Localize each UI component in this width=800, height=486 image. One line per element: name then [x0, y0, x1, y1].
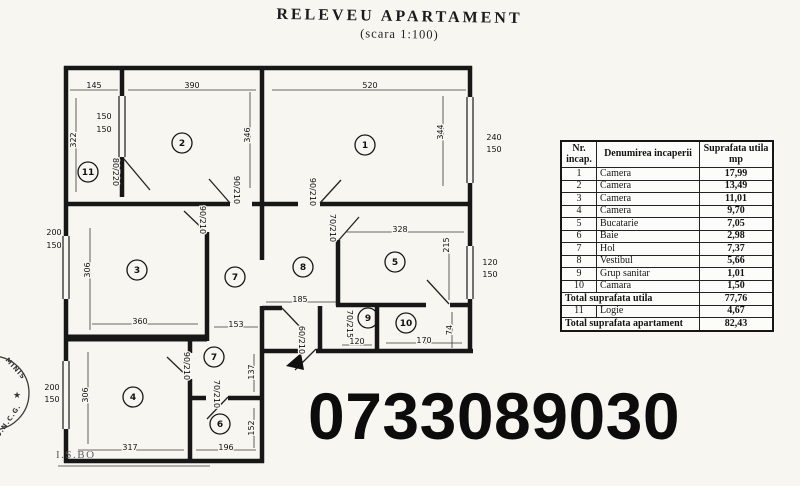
cell-room-name: Camera [597, 193, 700, 206]
dimension-label: 150 [482, 270, 497, 279]
phone-number: 0733089030 [308, 378, 680, 454]
cell-room-number: 7 [561, 243, 597, 256]
dimension-label: 344 [436, 124, 445, 139]
cell-room-number: 2 [561, 180, 597, 193]
dimension-label: 60/210 [297, 326, 306, 354]
table-row: 5Bucatarie7,05 [561, 218, 773, 231]
dimension-label: 120 [349, 337, 364, 346]
dimension-label: 150 [486, 145, 501, 154]
cell-room-number: 5 [561, 218, 597, 231]
table-row: 8Vestibul5,66 [561, 255, 773, 268]
dimension-label: 150 [46, 241, 61, 250]
dimension-label: 170 [416, 336, 431, 345]
dimension-label: 185 [292, 295, 307, 304]
cell-room-area: 17,99 [700, 168, 774, 181]
table-row: Total suprafata apartament82,43 [561, 318, 773, 331]
room-number-label-4: 4 [130, 393, 136, 403]
dimension-label: 200 [46, 228, 61, 237]
dimension-label: 70/210 [212, 380, 221, 408]
cell-room-name: Bucatarie [597, 218, 700, 231]
dimension-label: 360 [132, 317, 147, 326]
cell-room-name: Camera [597, 205, 700, 218]
dimension-label: 90/210 [182, 352, 191, 380]
dimension-label: 390 [184, 81, 199, 90]
dimension-label: 317 [122, 443, 137, 452]
cell-room-area: 13,49 [700, 180, 774, 193]
cell-room-number: 4 [561, 205, 597, 218]
cell-room-name: Logie [597, 305, 700, 318]
table-row: 3Camera11,01 [561, 193, 773, 206]
dimension-label: 520 [362, 81, 377, 90]
cell-room-name: Vestibul [597, 255, 700, 268]
scanned-apartment-survey-page: RELEVEU APARTAMENT (scara 1:100) I.S.BO … [0, 0, 800, 486]
surveyor-corner-mark: I.S.BO [56, 449, 96, 461]
stamp-text-bottom: O.N.C.G. [0, 403, 23, 439]
dimension-label: 70/215 [345, 310, 354, 338]
cell-room-name: Hol [597, 243, 700, 256]
entrance-marker-triangle [286, 353, 304, 370]
table-row: 9Grup sanitar1,01 [561, 268, 773, 281]
dimension-label: 153 [228, 320, 243, 329]
table-row: 1Camera17,99 [561, 168, 773, 181]
dimension-label: 215 [442, 237, 451, 252]
table-row: 2Camera13,49 [561, 180, 773, 193]
room-number-label-5: 5 [392, 258, 398, 268]
cell-room-area: 11,01 [700, 193, 774, 206]
cell-total-utila-value: 77,76 [700, 293, 774, 306]
room-number-label-3: 3 [134, 266, 140, 276]
table-row: 6Baie2,98 [561, 230, 773, 243]
dimension-label: 145 [86, 81, 101, 90]
dimension-label: 196 [218, 443, 233, 452]
cell-room-number: 3 [561, 193, 597, 206]
stamp-star-icon: ★ [13, 391, 21, 401]
cell-room-area: 9,70 [700, 205, 774, 218]
dimension-label: 90/210 [198, 206, 207, 234]
dimension-label: 120 [482, 258, 497, 267]
table-row: Total suprafata utila77,76 [561, 293, 773, 306]
dimension-label: 74 [445, 325, 454, 335]
cell-total-apartament-value: 82,43 [700, 318, 774, 331]
stamp-text-top: MINIS [4, 356, 28, 381]
dimension-label: 150 [96, 112, 111, 121]
table-row: 4Camera9,70 [561, 205, 773, 218]
dimension-label: 90/210 [308, 178, 317, 206]
col-header-nr: Nr. incap. [561, 141, 597, 168]
cell-room-area: 5,66 [700, 255, 774, 268]
partial-round-stamp: MINIS O.N.C.G. ★ [0, 348, 46, 444]
cell-room-number: 11 [561, 305, 597, 318]
cell-room-name: Camara [597, 280, 700, 293]
dimension-label: 80/220 [111, 158, 120, 186]
cell-room-number: 1 [561, 168, 597, 181]
cell-room-name: Baie [597, 230, 700, 243]
table-row: 7Hol7,37 [561, 243, 773, 256]
dimension-label: 200 [44, 383, 59, 392]
room-number-label-2: 2 [179, 139, 185, 149]
col-header-name: Denumirea incaperii [597, 141, 700, 168]
dimension-label: 240 [486, 133, 501, 142]
dimension-label: 346 [243, 127, 252, 142]
cell-room-name: Camera [597, 168, 700, 181]
cell-room-area: 1,50 [700, 280, 774, 293]
col-header-mp: Suprafata utila mp [700, 141, 774, 168]
room-area-table: Nr. incap. Denumirea incaperii Suprafata… [560, 140, 774, 332]
dimension-label: 306 [83, 262, 92, 277]
cell-total-utila-label: Total suprafata utila [561, 293, 700, 306]
dimension-label: 306 [81, 387, 90, 402]
dimension-label: 150 [96, 125, 111, 134]
dimension-label: 322 [69, 132, 78, 147]
cell-room-area: 2,98 [700, 230, 774, 243]
room-number-label-11: 11 [82, 168, 95, 178]
dimension-label: 90/210 [232, 176, 241, 204]
cell-room-number: 6 [561, 230, 597, 243]
cell-room-name: Grup sanitar [597, 268, 700, 281]
cell-room-area: 7,05 [700, 218, 774, 231]
dimension-label: 152 [247, 420, 256, 435]
room-number-label-1: 1 [362, 141, 368, 151]
table-row: 10Camara1,50 [561, 280, 773, 293]
room-number-label-7: 7 [232, 273, 238, 283]
room-number-label-6: 6 [217, 420, 223, 430]
table-header-row: Nr. incap. Denumirea incaperii Suprafata… [561, 141, 773, 168]
cell-room-number: 9 [561, 268, 597, 281]
cell-room-number: 10 [561, 280, 597, 293]
cell-room-area: 7,37 [700, 243, 774, 256]
table-row: 11Logie4,67 [561, 305, 773, 318]
cell-room-area: 4,67 [700, 305, 774, 318]
cell-room-name: Camera [597, 180, 700, 193]
room-number-label-8: 8 [300, 263, 306, 273]
cell-total-apartament-label: Total suprafata apartament [561, 318, 700, 331]
dimension-label: 328 [392, 225, 407, 234]
room-number-label-9: 9 [365, 314, 371, 324]
cell-room-number: 8 [561, 255, 597, 268]
dimension-label: 70/210 [328, 214, 337, 242]
room-number-label-7: 7 [211, 353, 217, 363]
cell-room-area: 1,01 [700, 268, 774, 281]
room-number-label-10: 10 [400, 319, 413, 329]
dimension-label: 137 [247, 364, 256, 379]
dimension-label: 150 [44, 395, 59, 404]
